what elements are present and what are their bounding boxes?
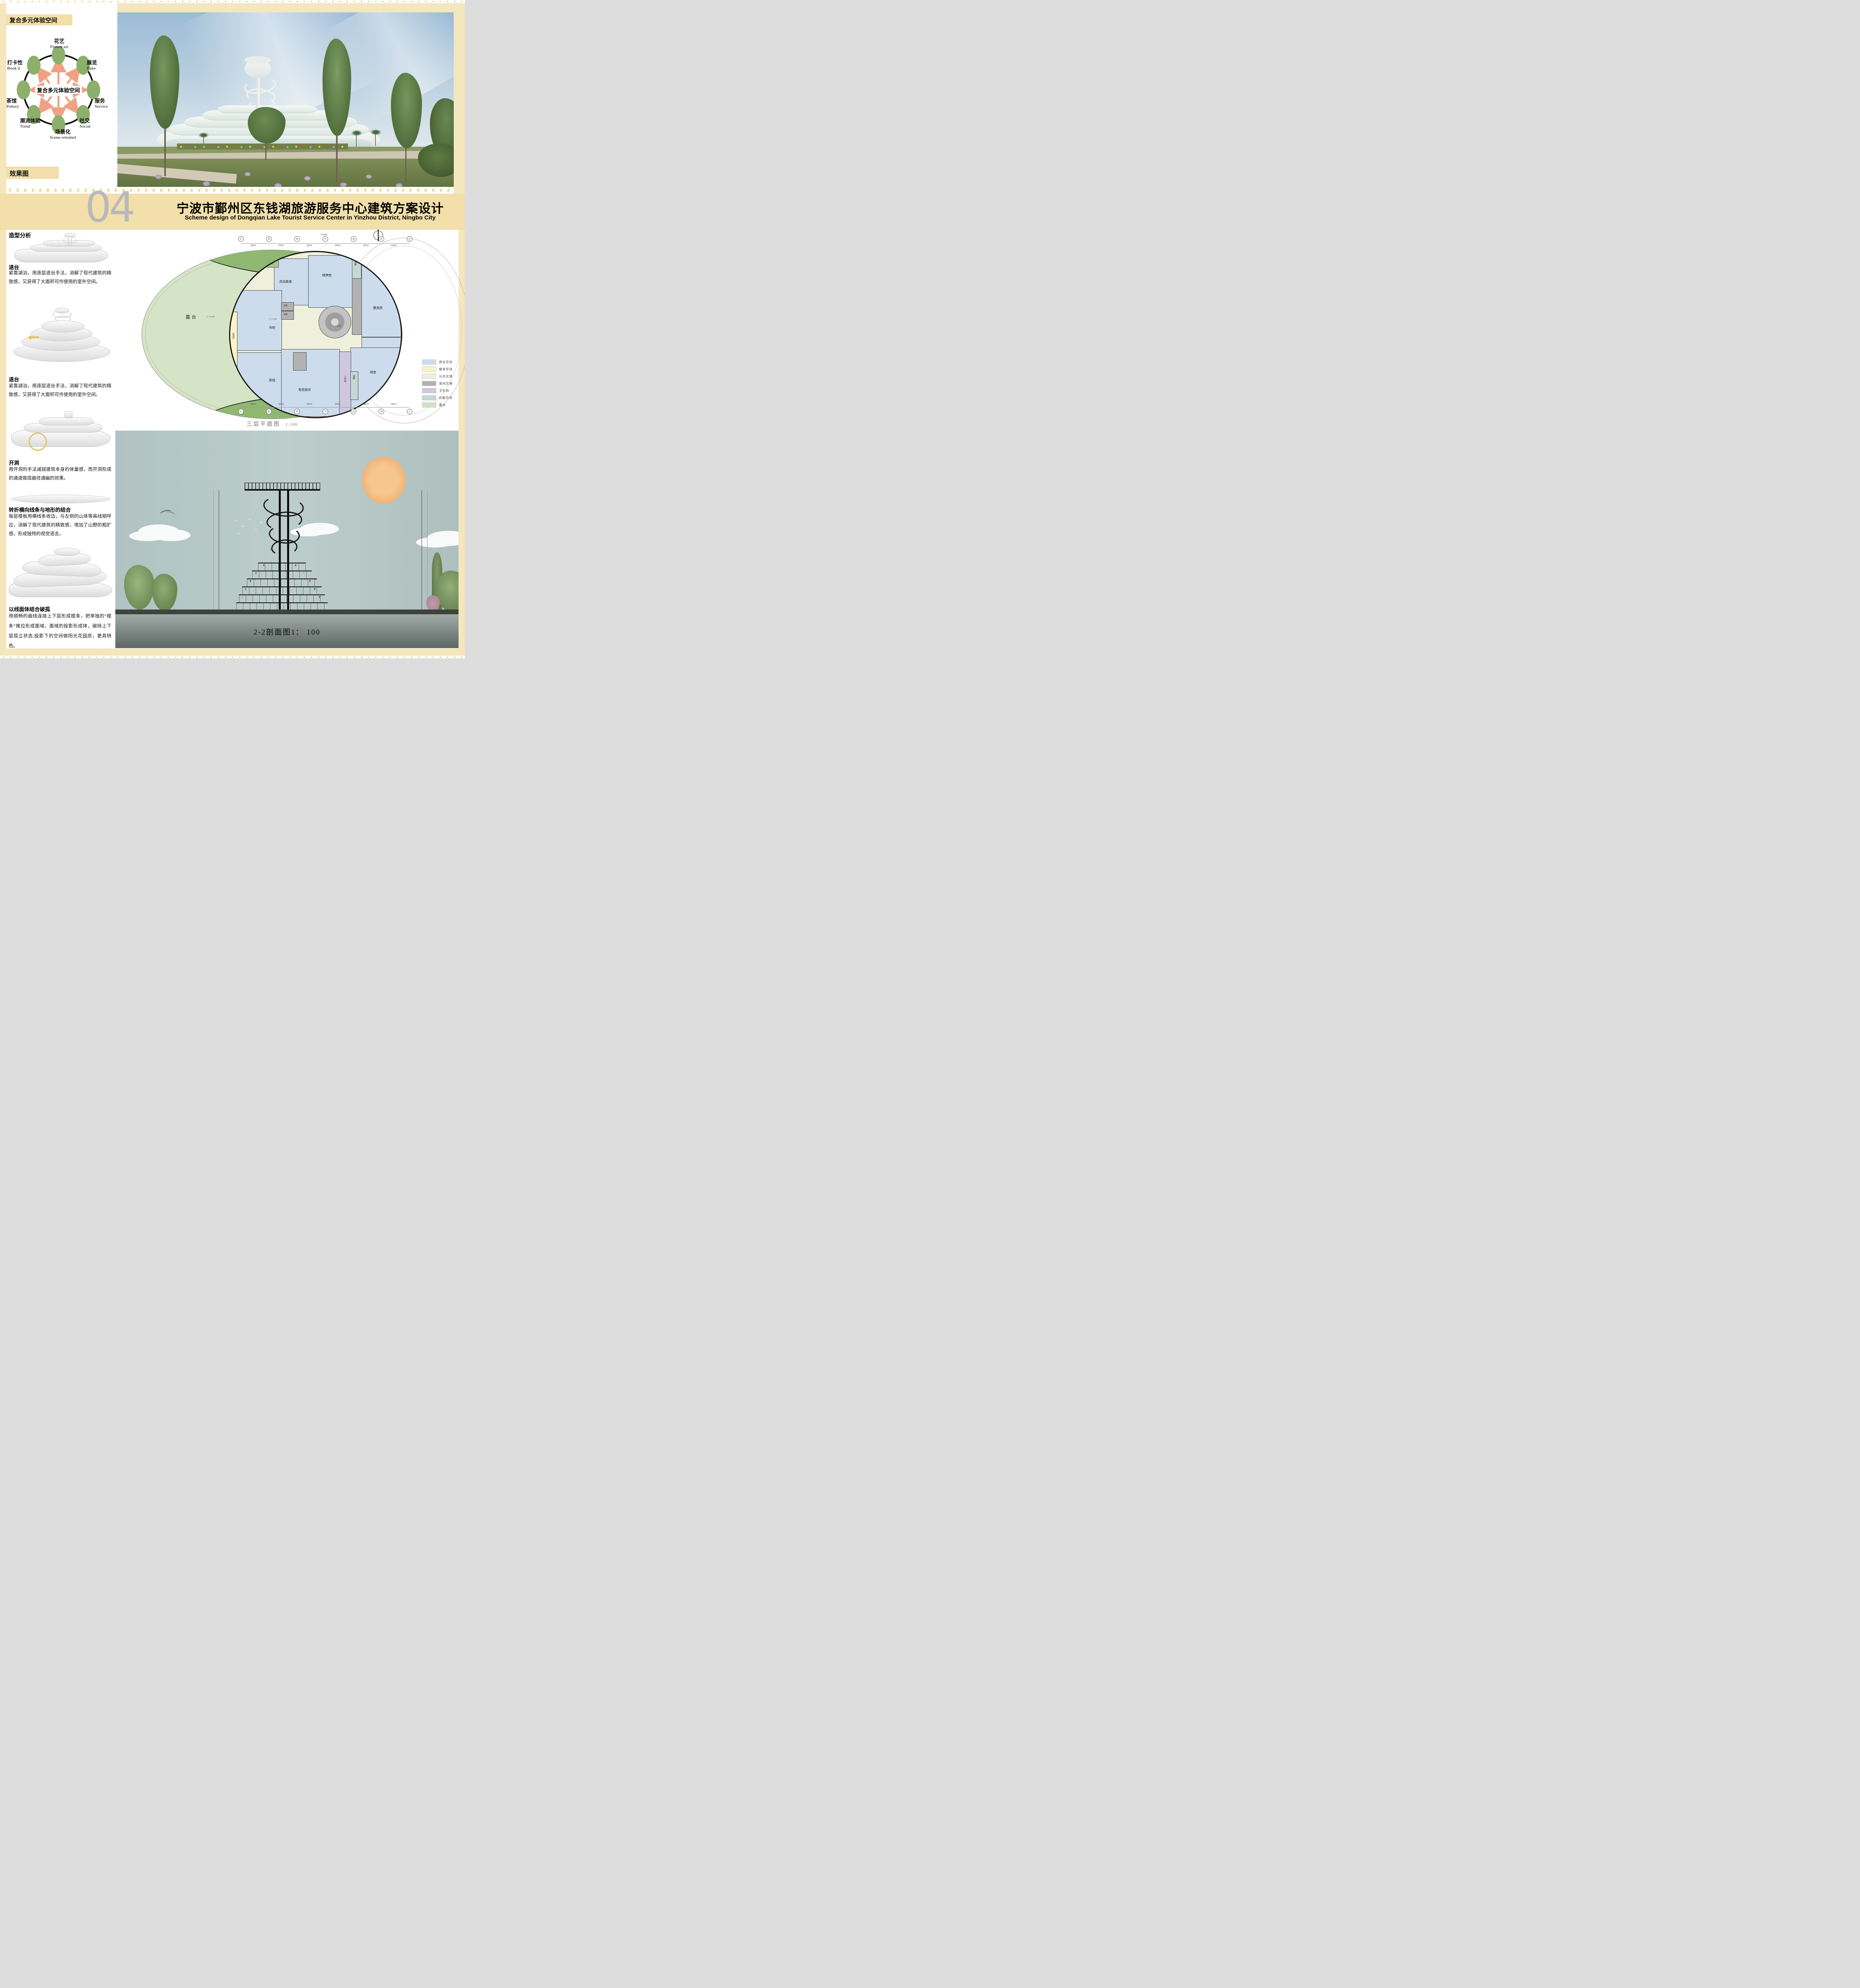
room-storage-top: 储藏	[352, 259, 362, 279]
poster-title-cn: 宁波市鄞州区东钱湖旅游服务中心建筑方案设计	[159, 198, 461, 216]
node-label-bake: 展览 Bake	[87, 60, 119, 72]
conifer	[432, 552, 442, 612]
terrace-label: 露台	[186, 314, 198, 320]
room-book-bar: 书吧	[233, 290, 282, 351]
building-plan-oval: 洗浴桑拿 棋牌室 储藏 健身房 书吧 茶馆 休闲厅 歌舞酒厅	[229, 251, 402, 418]
block-text-opening: 用开洞的手法减弱建筑本身的体量感，而开洞形成的通道做成曲径通幽的效果。	[9, 465, 111, 483]
section-caption-band: 2-2剖面图1： 100	[115, 614, 459, 648]
spiral-ramp	[243, 76, 277, 96]
room-gym: 健身房	[362, 255, 402, 337]
node-label-pottery: 茶馆 Pottery	[6, 98, 32, 110]
floor-plan-area: 57600 C D E F G H J 9600 9600 9600 9600 …	[115, 230, 459, 431]
sun	[362, 457, 406, 504]
model-image-lines-surfaces	[6, 544, 114, 602]
pink-shrub	[426, 595, 440, 612]
block-text-break-isolation: 用顺畅的曲线连接上下层形成檩条，把单独的“檩条”推拉形成面域，面域的投影形成体，…	[9, 612, 111, 651]
room-garden-chip: 花园	[267, 260, 279, 268]
top-dotted-border	[0, 0, 465, 3]
central-ramp	[319, 306, 351, 338]
bird-large	[159, 509, 173, 518]
cloud-left	[129, 531, 166, 541]
node-label-scene: 场景化 Scene-oriented	[31, 129, 95, 141]
diagram-header-label: 复合多元体验空间	[10, 16, 57, 24]
section-caption: 2-2剖面图1： 100	[115, 626, 459, 637]
section-number: 04	[85, 186, 133, 228]
elevator-core	[293, 352, 307, 371]
node-label-service: 服务 Service	[95, 98, 119, 110]
diagram-header-chip: 复合多元体验空间	[6, 14, 72, 25]
model-image-opening	[8, 410, 113, 454]
promenade-path	[117, 150, 454, 162]
room-esports: 电竞娱乐	[281, 349, 340, 417]
room-toilet: 卫生间	[339, 351, 351, 415]
room-lounge: 休闲厅	[229, 312, 237, 376]
plan-caption: 三层平面图 1:100	[247, 420, 297, 428]
front-lawn	[117, 159, 454, 189]
block-text-setback-1: 紧靠湖泊，用逐层退台手法，消解了现代建筑的精致感，又获得了大面积可作使用的室外空…	[9, 269, 111, 286]
dimension-line-right	[422, 490, 422, 611]
bottom-dotted-border	[0, 656, 465, 658]
poster-title-en: Scheme design of Dongqian Lake Tourist S…	[159, 214, 461, 221]
block-text-contour: 每层楼板用横线条收边，与左侧的山体等高线相呼应，消解了现代建筑的精致感，增加了山…	[9, 512, 111, 538]
node-label-flower-art: 花艺 Flower art	[37, 38, 81, 50]
yellow-arrow	[29, 336, 39, 338]
render-label-chip: 效果图	[6, 167, 59, 179]
node-label-book-it: 打卡性 Book it	[7, 60, 37, 72]
foreground-path	[117, 162, 237, 184]
render-label: 效果图	[10, 168, 29, 178]
plan-level-mark: ▽ 12.400	[268, 318, 277, 320]
back-lawn	[117, 147, 454, 157]
yellow-circle-highlight	[29, 433, 47, 451]
node-label-trend: 潮流体验 Trend	[20, 118, 56, 130]
void-label: 上空	[337, 324, 341, 328]
room-storage-bottom: 储藏	[350, 371, 358, 400]
cloud-center	[290, 528, 325, 536]
tower-pod	[245, 59, 271, 78]
equipment-box-1: 设备	[281, 302, 294, 311]
diagram-center-label: 复合多元体验空间	[35, 86, 82, 94]
poster-page: 复合多元体验空间	[0, 0, 465, 658]
cloud-streak-2	[322, 12, 454, 123]
title-band: 04 宁波市鄞州区东钱湖旅游服务中心建筑方案设计 Scheme design o…	[0, 194, 465, 230]
model-image-thin-hull	[8, 493, 113, 505]
cloud-streak	[179, 12, 381, 142]
experience-diagram-panel: 复合多元体验空间	[6, 3, 117, 187]
dimension-line-left	[219, 490, 219, 611]
model-image-setback-1	[10, 232, 112, 262]
vertical-core	[352, 278, 362, 335]
room-tea-house: 茶馆	[233, 352, 282, 413]
node-label-social: 社交 Social	[80, 118, 107, 130]
equipment-box-2: 设备	[281, 311, 294, 320]
section-drawing-area: 2-2剖面图1： 100	[115, 431, 459, 648]
model-image-setback-2	[8, 305, 113, 371]
tower-column	[256, 74, 260, 114]
shape-analysis-column: 造型分析 退台 紧靠湖泊，用逐层退台手法，消解了现代建筑的精致感，又获得了大面积…	[6, 230, 115, 648]
block-text-setback-2: 紧靠湖泊，用逐层退台手法，消解了现代建筑的精致感，又获得了大面积可作使用的室外空…	[9, 382, 111, 399]
cloud-right	[416, 537, 454, 547]
sky	[117, 12, 454, 189]
render-image	[117, 12, 454, 189]
flower-bed	[177, 144, 348, 149]
terrace-level-mark: ▽ 12.400	[206, 316, 215, 318]
room-chess: 棋牌室	[308, 255, 353, 308]
